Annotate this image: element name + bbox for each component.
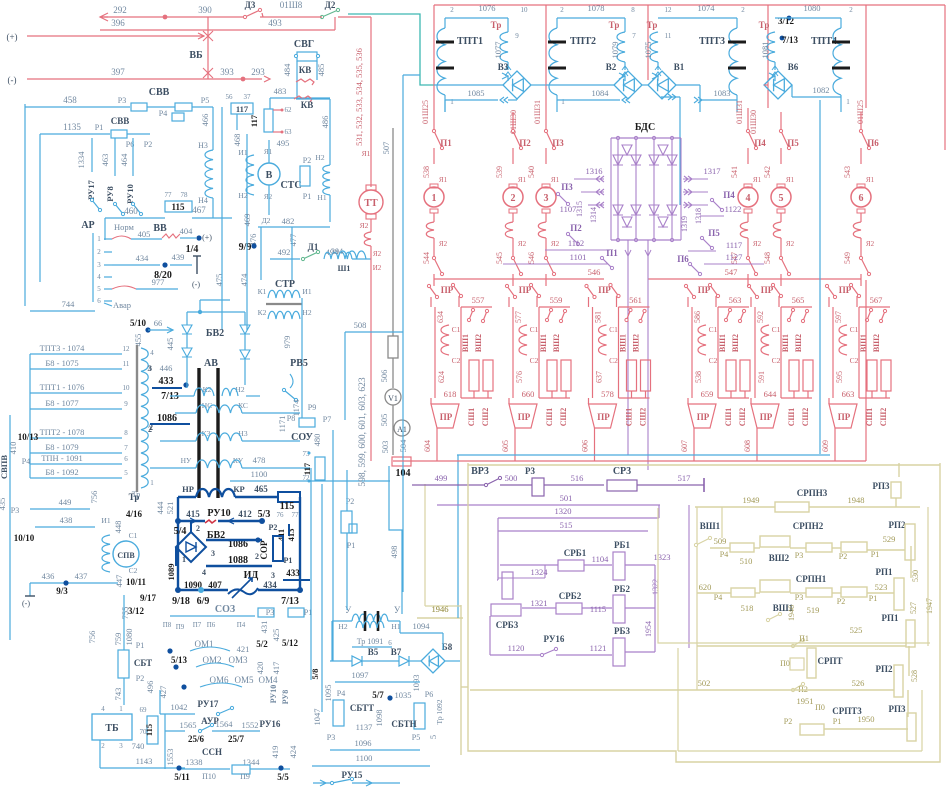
svg-text:РУ8: РУ8 bbox=[281, 690, 290, 705]
svg-text:Р3: Р3 bbox=[327, 733, 335, 742]
svg-text:Ш1: Ш1 bbox=[338, 264, 351, 273]
svg-text:1084: 1084 bbox=[592, 88, 610, 98]
svg-text:1081: 1081 bbox=[760, 42, 770, 59]
svg-text:РУ10: РУ10 bbox=[207, 508, 230, 519]
svg-text:ПР: ПР bbox=[697, 412, 710, 422]
svg-text:ВШ2: ВШ2 bbox=[872, 334, 881, 352]
svg-text:ОМ3: ОМ3 bbox=[228, 655, 248, 665]
svg-text:1137: 1137 bbox=[356, 722, 373, 732]
svg-text:529: 529 bbox=[883, 534, 896, 544]
svg-text:ПР: ПР bbox=[839, 285, 852, 295]
svg-text:РВ5: РВ5 bbox=[290, 358, 308, 369]
svg-text:СШ1: СШ1 bbox=[724, 408, 733, 427]
svg-text:25/6: 25/6 bbox=[188, 734, 205, 744]
svg-text:1565: 1565 bbox=[180, 720, 197, 730]
svg-text:3: 3 bbox=[211, 549, 215, 558]
svg-text:607: 607 bbox=[680, 440, 689, 452]
svg-text:464: 464 bbox=[119, 153, 129, 167]
svg-text:КС: КС bbox=[238, 401, 248, 410]
svg-text:СШ1: СШ1 bbox=[787, 408, 796, 427]
svg-text:С2: С2 bbox=[530, 356, 539, 365]
svg-text:СОУ: СОУ bbox=[291, 432, 313, 443]
svg-text:1096: 1096 bbox=[355, 738, 372, 748]
svg-text:1321: 1321 bbox=[531, 598, 548, 608]
svg-text:6/9: 6/9 bbox=[197, 596, 210, 607]
svg-text:531, 532, 533, 534, 535, 536: 531, 532, 533, 534, 535, 536 bbox=[354, 48, 364, 146]
svg-text:ТПТ2: ТПТ2 bbox=[570, 36, 596, 47]
svg-text:С2: С2 bbox=[772, 356, 781, 365]
svg-text:10/13: 10/13 bbox=[18, 432, 39, 442]
svg-text:78: 78 bbox=[181, 191, 189, 199]
svg-text:1122: 1122 bbox=[725, 204, 742, 214]
svg-text:СВПВ: СВПВ bbox=[0, 455, 9, 479]
svg-text:1095: 1095 bbox=[323, 685, 333, 702]
svg-text:ОМ4: ОМ4 bbox=[258, 675, 278, 685]
svg-text:КВ: КВ bbox=[301, 100, 314, 110]
svg-text:2: 2 bbox=[560, 6, 564, 14]
svg-text:618: 618 bbox=[444, 389, 457, 399]
svg-text:1948: 1948 bbox=[848, 495, 865, 505]
svg-text:1074: 1074 bbox=[698, 3, 716, 13]
svg-text:Я2: Я2 bbox=[753, 240, 762, 248]
svg-text:469: 469 bbox=[242, 214, 252, 227]
svg-text:РП3: РП3 bbox=[873, 481, 890, 491]
svg-text:РУ16: РУ16 bbox=[544, 634, 565, 644]
svg-text:Р3: Р3 bbox=[525, 466, 535, 476]
svg-text:П6: П6 bbox=[867, 138, 879, 148]
svg-text:С1: С1 bbox=[772, 325, 781, 334]
svg-text:539: 539 bbox=[495, 166, 504, 178]
svg-text:486: 486 bbox=[320, 116, 330, 129]
svg-text:1/4: 1/4 bbox=[186, 244, 199, 255]
svg-text:528: 528 bbox=[910, 670, 919, 682]
svg-text:421: 421 bbox=[237, 644, 250, 654]
svg-text:10: 10 bbox=[521, 6, 529, 14]
svg-text:ВШ1: ВШ1 bbox=[700, 521, 721, 531]
svg-text:Д2: Д2 bbox=[325, 0, 336, 10]
svg-text:1097: 1097 bbox=[352, 670, 369, 680]
svg-text:ВШ2: ВШ2 bbox=[794, 334, 803, 352]
svg-text:РУ10: РУ10 bbox=[125, 184, 135, 204]
svg-text:1314: 1314 bbox=[589, 207, 598, 223]
svg-text:547: 547 bbox=[725, 267, 738, 277]
svg-text:V1: V1 bbox=[388, 394, 398, 403]
svg-text:Р3: Р3 bbox=[11, 506, 19, 515]
svg-text:П1: П1 bbox=[606, 248, 618, 258]
svg-text:466: 466 bbox=[200, 114, 210, 127]
svg-text:1078: 1078 bbox=[588, 3, 605, 13]
svg-text:Р2: Р2 bbox=[839, 552, 847, 561]
svg-text:П9: П9 bbox=[176, 623, 185, 631]
svg-text:660: 660 bbox=[522, 389, 535, 399]
svg-text:1320: 1320 bbox=[555, 506, 572, 516]
svg-text:530: 530 bbox=[911, 570, 920, 582]
svg-text:ВШ2: ВШ2 bbox=[731, 334, 740, 352]
svg-text:505: 505 bbox=[379, 414, 389, 427]
svg-text:5: 5 bbox=[97, 285, 101, 293]
svg-text:563: 563 bbox=[729, 295, 742, 305]
svg-text:63: 63 bbox=[285, 128, 293, 136]
svg-text:460: 460 bbox=[124, 206, 138, 216]
svg-text:Авар: Авар bbox=[113, 300, 131, 310]
svg-text:620: 620 bbox=[699, 582, 712, 592]
svg-text:1076: 1076 bbox=[479, 3, 496, 13]
svg-text:РП2: РП2 bbox=[876, 664, 893, 674]
svg-text:10: 10 bbox=[123, 384, 131, 392]
svg-text:ССН: ССН bbox=[202, 747, 222, 757]
svg-text:ВШ1: ВШ1 bbox=[859, 334, 868, 352]
svg-text:К2: К2 bbox=[203, 385, 212, 394]
svg-text:И1: И1 bbox=[101, 516, 110, 525]
svg-text:740: 740 bbox=[132, 741, 145, 751]
svg-text:Р1: Р1 bbox=[95, 123, 103, 132]
svg-text:482: 482 bbox=[282, 216, 295, 226]
svg-text:503: 503 bbox=[380, 441, 390, 454]
svg-text:500: 500 bbox=[505, 473, 518, 483]
svg-text:1946: 1946 bbox=[432, 604, 449, 614]
svg-text:5/12: 5/12 bbox=[282, 638, 299, 648]
svg-text:502: 502 bbox=[698, 678, 711, 688]
svg-text:П1: П1 bbox=[799, 634, 809, 643]
svg-text:2: 2 bbox=[196, 524, 200, 533]
svg-text:436: 436 bbox=[42, 571, 55, 581]
svg-text:1104: 1104 bbox=[592, 554, 609, 564]
svg-text:(+): (+) bbox=[202, 233, 212, 242]
svg-text:518: 518 bbox=[741, 603, 754, 613]
svg-text:1323: 1323 bbox=[654, 552, 671, 562]
svg-text:Н4: Н4 bbox=[198, 196, 208, 205]
svg-text:447: 447 bbox=[114, 575, 124, 588]
svg-text:01Ш30: 01Ш30 bbox=[749, 110, 758, 134]
svg-text:П7: П7 bbox=[193, 621, 202, 629]
svg-text:1085: 1085 bbox=[468, 88, 485, 98]
svg-text:СШ1: СШ1 bbox=[467, 408, 476, 427]
svg-text:ВШ1: ВШ1 bbox=[539, 334, 548, 352]
svg-text:Р1: Р1 bbox=[871, 550, 879, 559]
svg-text:СОЗ: СОЗ bbox=[215, 604, 235, 615]
svg-text:4: 4 bbox=[202, 568, 206, 577]
svg-text:К2: К2 bbox=[258, 308, 267, 317]
svg-text:СР3: СР3 bbox=[613, 466, 631, 477]
svg-text:Я2: Я2 bbox=[373, 250, 382, 258]
svg-text:608: 608 bbox=[743, 440, 752, 452]
svg-text:405: 405 bbox=[138, 229, 151, 239]
svg-text:Я2: Я2 bbox=[551, 240, 560, 248]
svg-text:5/4: 5/4 bbox=[174, 526, 187, 537]
svg-text:393: 393 bbox=[220, 67, 234, 77]
svg-text:1951: 1951 bbox=[797, 696, 814, 706]
svg-text:СВВ: СВВ bbox=[149, 87, 170, 98]
svg-text:417: 417 bbox=[271, 662, 281, 675]
svg-text:В2: В2 bbox=[606, 62, 617, 72]
svg-text:СРБ2: СРБ2 bbox=[559, 591, 582, 601]
svg-text:480: 480 bbox=[312, 434, 322, 447]
svg-text:540: 540 bbox=[527, 166, 536, 178]
svg-text:591: 591 bbox=[757, 371, 766, 383]
svg-text:И2: И2 bbox=[373, 264, 382, 272]
svg-text:СБТ: СБТ bbox=[134, 658, 152, 668]
svg-text:637: 637 bbox=[595, 371, 604, 383]
svg-text:759: 759 bbox=[113, 633, 123, 646]
svg-text:АВ: АВ bbox=[204, 358, 218, 369]
svg-text:1: 1 bbox=[119, 705, 123, 713]
svg-text:НУ: НУ bbox=[181, 456, 192, 465]
svg-text:Я2: Я2 bbox=[518, 240, 527, 248]
svg-text:Б8 - 1092: Б8 - 1092 bbox=[45, 467, 78, 477]
svg-text:1082: 1082 bbox=[813, 85, 830, 95]
svg-text:597: 597 bbox=[834, 311, 843, 323]
svg-text:5: 5 bbox=[779, 193, 784, 204]
svg-text:Р2: Р2 bbox=[784, 717, 792, 726]
svg-text:Я1: Я1 bbox=[866, 176, 875, 184]
svg-text:СШ2: СШ2 bbox=[879, 408, 888, 427]
svg-text:В7: В7 bbox=[391, 647, 402, 657]
svg-text:1: 1 bbox=[432, 193, 437, 204]
svg-text:ПР: ПР bbox=[519, 285, 532, 295]
svg-text:516: 516 bbox=[571, 473, 584, 483]
svg-text:433: 433 bbox=[159, 376, 174, 387]
svg-text:4: 4 bbox=[150, 349, 154, 357]
svg-text:5: 5 bbox=[124, 469, 128, 477]
svg-text:438: 438 bbox=[60, 515, 73, 525]
svg-text:Я1: Я1 bbox=[362, 149, 371, 158]
svg-text:2: 2 bbox=[148, 425, 152, 434]
svg-text:2: 2 bbox=[450, 6, 454, 14]
svg-text:2: 2 bbox=[741, 6, 745, 14]
svg-text:1089: 1089 bbox=[166, 564, 176, 581]
svg-text:578: 578 bbox=[601, 389, 614, 399]
svg-text:(+): (+) bbox=[6, 32, 17, 42]
svg-text:6: 6 bbox=[124, 455, 128, 463]
svg-text:1035: 1035 bbox=[395, 690, 412, 700]
svg-text:И1: И1 bbox=[238, 148, 247, 157]
svg-text:519: 519 bbox=[807, 605, 820, 615]
svg-text:496: 496 bbox=[145, 681, 155, 694]
svg-text:Р8: Р8 bbox=[287, 414, 295, 423]
svg-text:538: 538 bbox=[694, 371, 703, 383]
svg-text:С1: С1 bbox=[709, 325, 718, 334]
svg-text:КВ: КВ bbox=[299, 65, 312, 75]
svg-text:ТПТ1: ТПТ1 bbox=[457, 36, 483, 47]
svg-text:С2: С2 bbox=[709, 356, 718, 365]
svg-text:Тр: Тр bbox=[132, 490, 141, 499]
svg-text:458: 458 bbox=[63, 95, 77, 105]
svg-text:Я1: Я1 bbox=[551, 176, 560, 184]
svg-text:498: 498 bbox=[389, 546, 399, 559]
svg-text:7/13: 7/13 bbox=[281, 596, 299, 607]
svg-text:2: 2 bbox=[849, 6, 853, 14]
svg-text:КР: КР bbox=[233, 484, 244, 494]
svg-text:10/11: 10/11 bbox=[126, 577, 147, 587]
svg-text:Я1: Я1 bbox=[786, 176, 795, 184]
svg-text:12: 12 bbox=[123, 345, 131, 353]
svg-text:437: 437 bbox=[75, 571, 88, 581]
svg-text:1098: 1098 bbox=[374, 710, 384, 727]
svg-text:РП3: РП3 bbox=[889, 704, 906, 714]
svg-text:СШ2: СШ2 bbox=[738, 408, 747, 427]
svg-text:11: 11 bbox=[123, 360, 130, 368]
svg-text:Норм: Норм bbox=[114, 222, 135, 232]
svg-text:1093: 1093 bbox=[411, 675, 421, 692]
svg-text:292: 292 bbox=[113, 5, 127, 15]
svg-text:495: 495 bbox=[277, 138, 290, 148]
svg-text:493: 493 bbox=[268, 18, 282, 28]
svg-text:К1: К1 bbox=[258, 287, 267, 296]
svg-text:Р4: Р4 bbox=[720, 550, 728, 559]
svg-text:1079: 1079 bbox=[610, 42, 620, 59]
svg-text:ВШ2: ВШ2 bbox=[552, 334, 561, 352]
svg-text:420: 420 bbox=[255, 662, 265, 675]
svg-text:СРПН1: СРПН1 bbox=[796, 574, 827, 584]
svg-text:РБ3: РБ3 bbox=[614, 626, 630, 636]
svg-text:ПР: ПР bbox=[441, 285, 454, 295]
svg-text:СШ1: СШ1 bbox=[625, 408, 634, 427]
svg-text:477: 477 bbox=[288, 234, 298, 247]
svg-text:544: 544 bbox=[422, 252, 431, 264]
svg-text:506: 506 bbox=[379, 370, 389, 383]
svg-text:567: 567 bbox=[870, 295, 883, 305]
svg-text:6: 6 bbox=[97, 297, 101, 305]
svg-text:5/7: 5/7 bbox=[372, 690, 384, 700]
svg-text:Тр: Тр bbox=[609, 20, 620, 30]
svg-text:В1: В1 bbox=[674, 62, 685, 72]
svg-text:445: 445 bbox=[165, 338, 175, 351]
svg-text:1: 1 bbox=[150, 479, 154, 487]
svg-text:455: 455 bbox=[133, 334, 143, 347]
svg-text:592: 592 bbox=[756, 311, 765, 323]
svg-text:СРБ3: СРБ3 bbox=[496, 620, 519, 630]
svg-text:11: 11 bbox=[665, 32, 672, 40]
svg-text:9: 9 bbox=[124, 400, 128, 408]
svg-text:483: 483 bbox=[274, 86, 287, 96]
svg-text:606: 606 bbox=[581, 440, 590, 452]
svg-text:756: 756 bbox=[87, 631, 97, 644]
svg-text:Р4: Р4 bbox=[337, 689, 345, 698]
svg-text:1135: 1135 bbox=[63, 122, 81, 132]
svg-text:Р3: Р3 bbox=[795, 551, 803, 560]
svg-text:431: 431 bbox=[259, 621, 269, 634]
svg-text:5/5: 5/5 bbox=[277, 772, 289, 782]
svg-text:1047: 1047 bbox=[312, 709, 322, 726]
svg-text:ВШ2: ВШ2 bbox=[474, 334, 483, 352]
svg-text:1088: 1088 bbox=[228, 555, 248, 566]
svg-text:РУ10: РУ10 bbox=[269, 685, 278, 704]
svg-text:404: 404 bbox=[180, 226, 194, 236]
svg-text:У: У bbox=[345, 605, 352, 615]
svg-text:Я2: Я2 bbox=[786, 240, 795, 248]
svg-text:1042: 1042 bbox=[171, 702, 188, 712]
svg-text:Я1: Я1 bbox=[439, 176, 448, 184]
svg-text:Я2: Я2 bbox=[439, 240, 448, 248]
svg-text:1: 1 bbox=[450, 98, 454, 106]
svg-text:419: 419 bbox=[270, 746, 280, 759]
svg-text:П9: П9 bbox=[240, 772, 250, 781]
svg-text:598, 599, 600, 601, 603, 623: 598, 599, 600, 601, 603, 623 bbox=[358, 377, 368, 487]
svg-text:ВР3: ВР3 bbox=[471, 466, 489, 477]
svg-text:525: 525 bbox=[850, 625, 863, 635]
svg-text:СОР: СОР bbox=[259, 540, 269, 560]
svg-text:12: 12 bbox=[665, 6, 673, 14]
svg-text:10/10: 10/10 bbox=[14, 533, 35, 543]
svg-text:ТПН - 1091: ТПН - 1091 bbox=[41, 453, 83, 463]
svg-text:С1: С1 bbox=[129, 531, 138, 540]
svg-text:5/10: 5/10 bbox=[130, 318, 147, 328]
svg-text:СТС: СТС bbox=[280, 180, 301, 191]
svg-text:Р3: Р3 bbox=[795, 593, 803, 602]
svg-text:25/7: 25/7 bbox=[228, 734, 245, 744]
svg-text:Р6: Р6 bbox=[425, 690, 433, 699]
svg-text:01Ш31: 01Ш31 bbox=[533, 100, 542, 124]
svg-text:542: 542 bbox=[763, 166, 772, 178]
svg-text:Я2: Я2 bbox=[264, 193, 273, 201]
svg-text:9/18: 9/18 bbox=[172, 596, 190, 607]
svg-text:3: 3 bbox=[97, 261, 101, 269]
svg-text:СШ2: СШ2 bbox=[481, 408, 490, 427]
svg-text:744: 744 bbox=[62, 299, 76, 309]
svg-text:521: 521 bbox=[165, 502, 175, 515]
svg-text:3: 3 bbox=[119, 742, 123, 750]
svg-text:НР: НР bbox=[182, 484, 194, 494]
svg-text:СШ2: СШ2 bbox=[801, 408, 810, 427]
svg-text:Н2: Н2 bbox=[238, 191, 247, 200]
svg-text:Б8 - 1079: Б8 - 1079 bbox=[45, 442, 78, 452]
svg-text:2: 2 bbox=[97, 248, 101, 256]
svg-text:1947: 1947 bbox=[925, 598, 934, 614]
svg-text:СБТН: СБТН bbox=[391, 719, 416, 729]
svg-text:ОМ5: ОМ5 bbox=[234, 675, 254, 685]
svg-text:ПР: ПР bbox=[760, 412, 773, 422]
svg-text:Р1: Р1 bbox=[869, 594, 877, 603]
svg-text:3/12: 3/12 bbox=[128, 606, 145, 616]
svg-text:Р3: Р3 bbox=[266, 608, 274, 617]
svg-text:546: 546 bbox=[527, 252, 536, 264]
svg-text:Р1: Р1 bbox=[136, 641, 144, 650]
svg-text:478: 478 bbox=[253, 455, 266, 465]
svg-text:СРБ1: СРБ1 bbox=[564, 548, 587, 558]
svg-text:ПР: ПР bbox=[838, 412, 851, 422]
svg-text:П0: П0 bbox=[780, 659, 790, 668]
svg-text:1315: 1315 bbox=[575, 201, 584, 217]
svg-text:595: 595 bbox=[835, 371, 844, 383]
svg-text:77: 77 bbox=[292, 511, 300, 519]
svg-text:1112: 1112 bbox=[568, 238, 584, 248]
svg-text:1080: 1080 bbox=[124, 629, 134, 646]
svg-text:1: 1 bbox=[846, 98, 850, 106]
svg-text:499: 499 bbox=[435, 473, 448, 483]
svg-text:659: 659 bbox=[701, 389, 714, 399]
svg-text:1100: 1100 bbox=[356, 753, 373, 763]
svg-text:Р1: Р1 bbox=[284, 556, 293, 565]
svg-text:979: 979 bbox=[282, 336, 292, 349]
svg-text:1127: 1127 bbox=[726, 252, 743, 262]
svg-text:1: 1 bbox=[97, 235, 101, 243]
svg-text:501: 501 bbox=[560, 493, 573, 503]
svg-text:508: 508 bbox=[354, 320, 367, 330]
svg-text:П0: П0 bbox=[815, 703, 825, 712]
svg-text:Я1: Я1 bbox=[518, 176, 527, 184]
svg-text:Р4: Р4 bbox=[22, 457, 30, 466]
svg-text:1107: 1107 bbox=[560, 204, 577, 214]
svg-text:557: 557 bbox=[472, 295, 485, 305]
svg-text:У: У bbox=[394, 605, 401, 615]
svg-text:ВШ1: ВШ1 bbox=[619, 334, 628, 352]
svg-text:446: 446 bbox=[160, 363, 173, 373]
svg-text:4: 4 bbox=[746, 193, 751, 204]
svg-text:390: 390 bbox=[198, 5, 212, 15]
svg-text:6: 6 bbox=[859, 193, 864, 204]
svg-text:527: 527 bbox=[909, 602, 918, 614]
svg-text:Н2: Н2 bbox=[315, 153, 324, 162]
